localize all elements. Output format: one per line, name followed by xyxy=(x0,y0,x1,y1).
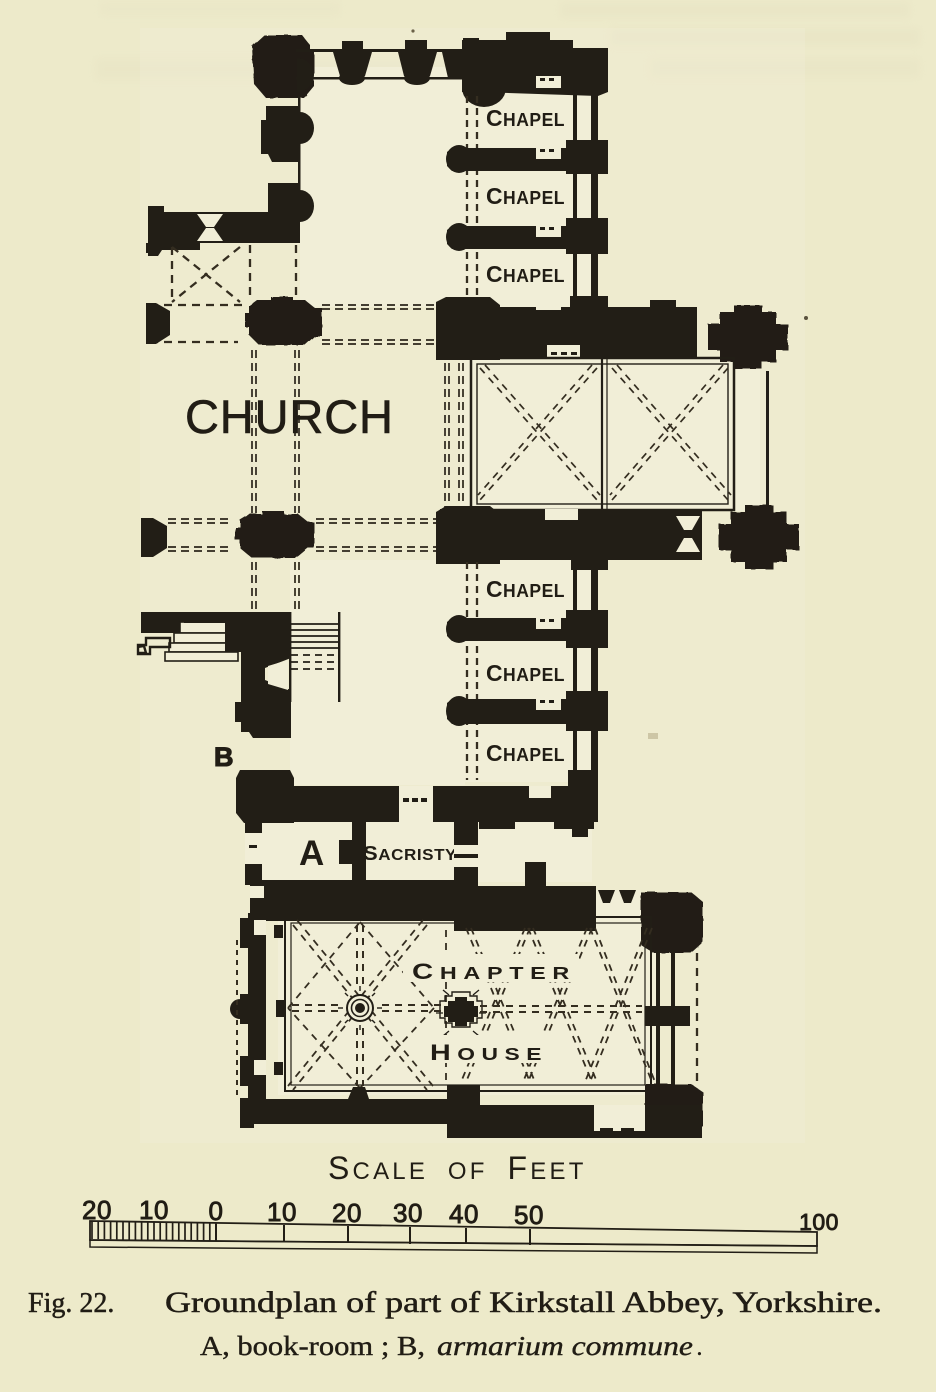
svg-text:30: 30 xyxy=(393,1198,423,1228)
svg-text:.: . xyxy=(696,1330,703,1361)
svg-text:0: 0 xyxy=(209,1196,224,1226)
svg-text:20: 20 xyxy=(332,1198,362,1228)
svg-text:A: A xyxy=(299,834,324,873)
svg-text:Groundplan of part of Kirkstal: Groundplan of part of Kirkstall Abbey, Y… xyxy=(165,1287,882,1319)
svg-text:CHURCH: CHURCH xyxy=(185,390,395,443)
svg-text:SACRISTY: SACRISTY xyxy=(363,843,457,865)
svg-text:A, book-room ; B,: A, book-room ; B, xyxy=(200,1330,425,1361)
svg-text:B: B xyxy=(214,742,234,772)
svg-text:armarium commune: armarium commune xyxy=(437,1330,693,1361)
svg-text:HOUSE: HOUSE xyxy=(430,1040,548,1065)
svg-text:10: 10 xyxy=(139,1195,169,1225)
svg-text:10: 10 xyxy=(267,1197,297,1227)
svg-text:50: 50 xyxy=(514,1200,544,1230)
svg-text:Fig. 22.: Fig. 22. xyxy=(28,1288,114,1319)
svg-text:40: 40 xyxy=(449,1199,479,1229)
svg-text:CHAPTER: CHAPTER xyxy=(412,959,576,984)
